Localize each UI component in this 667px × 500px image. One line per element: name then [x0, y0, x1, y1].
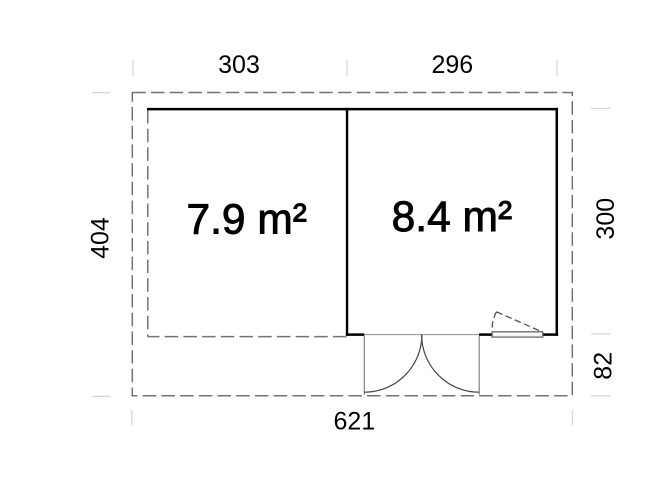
svg-text:300: 300 — [592, 198, 620, 240]
svg-text:8.4 m²: 8.4 m² — [392, 194, 512, 241]
svg-text:296: 296 — [431, 51, 473, 79]
svg-text:404: 404 — [87, 217, 115, 259]
svg-text:621: 621 — [334, 407, 376, 435]
svg-text:7.9 m²: 7.9 m² — [186, 196, 306, 243]
svg-text:303: 303 — [218, 51, 260, 79]
svg-text:82: 82 — [590, 352, 618, 380]
